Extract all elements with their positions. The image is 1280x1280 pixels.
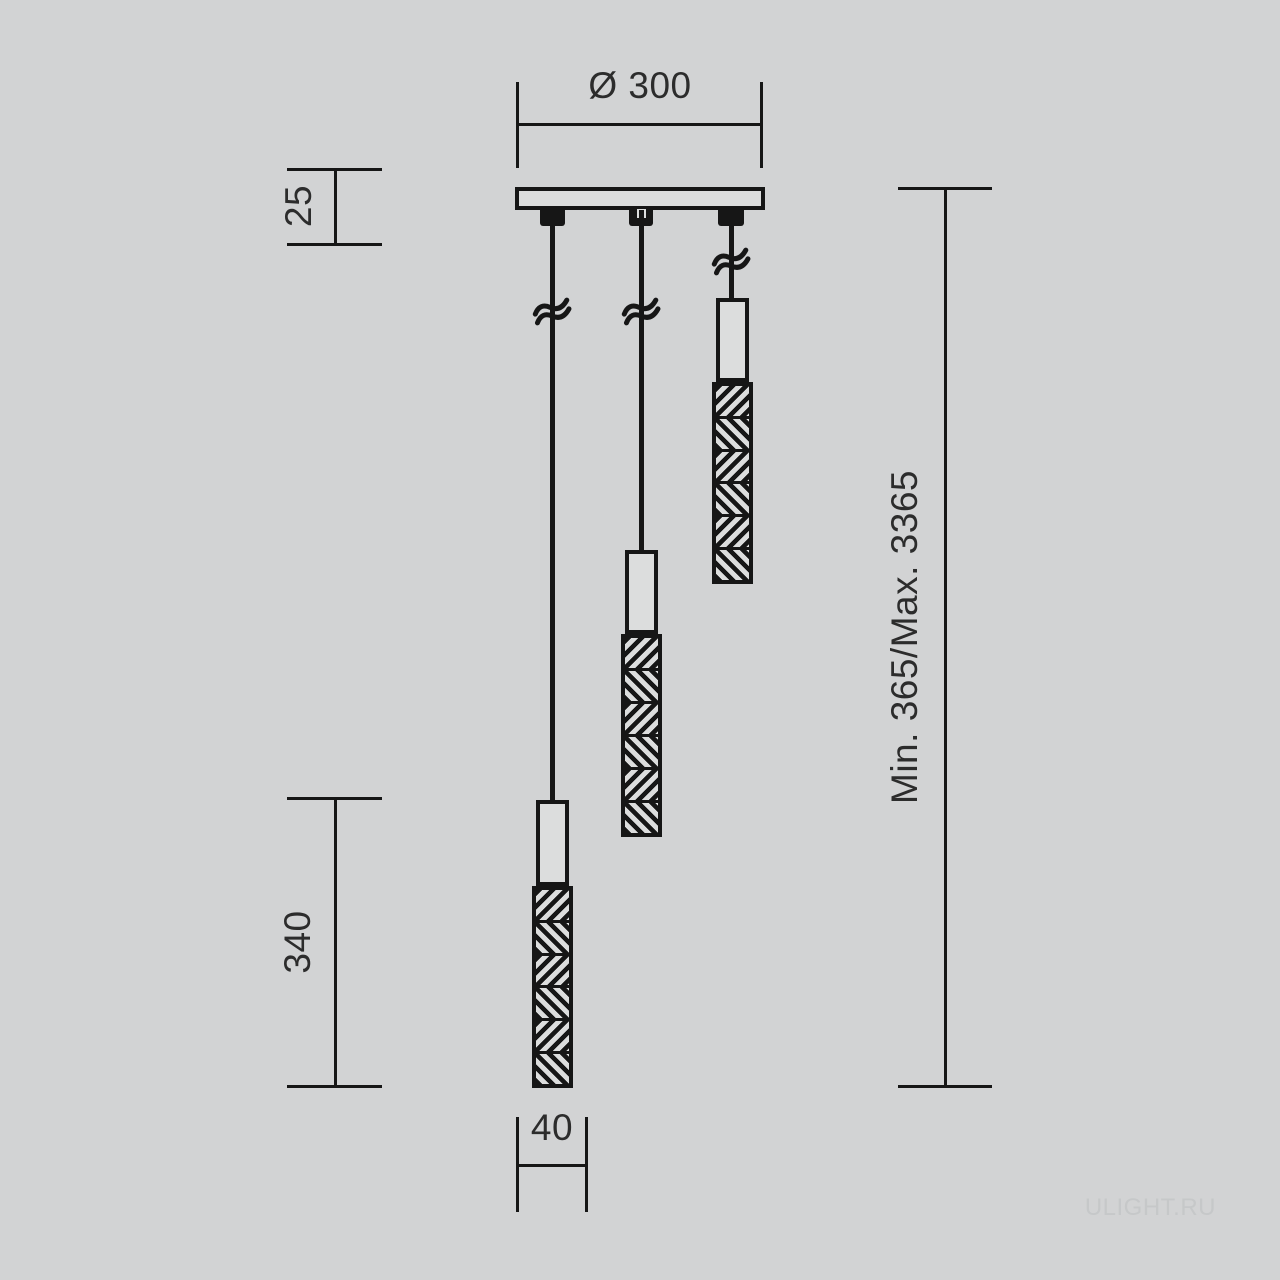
crystal-segment <box>536 1018 569 1051</box>
crystal-segment <box>625 734 658 767</box>
lamp-cylinder-body <box>625 550 658 634</box>
dimension-line <box>516 123 763 126</box>
crystal-segment <box>625 767 658 800</box>
crystal-segment <box>625 638 658 668</box>
crystal-segment <box>536 1051 569 1084</box>
dim-label-suspension-range: Min. 365/Max. 3365 <box>885 327 927 947</box>
dimension-line <box>334 168 337 246</box>
crystal-segment <box>716 514 749 547</box>
crystal-segment <box>536 985 569 1018</box>
dim-label-lamp-length: 340 <box>278 872 320 1012</box>
crystal-segment <box>716 386 749 416</box>
crystal-segment <box>716 481 749 514</box>
pendant-light-dimension-drawing: Ø 300 25 <box>0 0 1280 1280</box>
lamp-crystal-diffuser <box>621 634 662 837</box>
crystal-segment <box>716 449 749 482</box>
dim-label-canopy-height: 25 <box>279 156 319 256</box>
crystal-segment <box>625 800 658 833</box>
crystal-segment <box>536 953 569 986</box>
lamp-crystal-diffuser <box>532 886 573 1088</box>
crystal-segment <box>716 416 749 449</box>
lamp-cylinder-body <box>536 800 569 886</box>
suspension-cord-middle <box>639 210 644 552</box>
cable-break-icon <box>529 294 574 329</box>
cable-break-icon <box>708 244 753 279</box>
dim-label-diameter: Ø 300 <box>540 66 740 107</box>
crystal-segment <box>625 668 658 701</box>
dimension-line <box>334 797 337 1088</box>
crystal-segment <box>536 890 569 920</box>
ceiling-plate <box>515 187 765 210</box>
lamp-crystal-diffuser <box>712 382 753 584</box>
crystal-segment <box>716 547 749 580</box>
crystal-segment <box>625 701 658 734</box>
watermark-text: ULIGHT.RU <box>1085 1194 1216 1222</box>
cable-break-icon <box>618 294 663 329</box>
dimension-line <box>944 187 947 1088</box>
dim-label-lamp-width: 40 <box>502 1108 602 1149</box>
crystal-segment <box>536 920 569 953</box>
lamp-cylinder-body <box>716 298 749 382</box>
dimension-line <box>516 1164 588 1167</box>
